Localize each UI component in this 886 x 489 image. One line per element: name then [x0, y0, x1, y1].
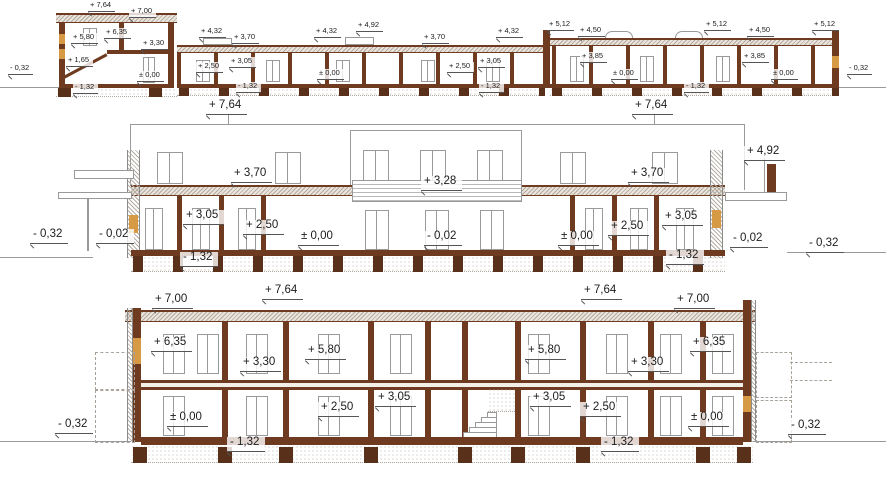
level-label: + 2,50 [318, 402, 359, 417]
dashed-outline [756, 400, 792, 443]
level-label: + 7,64 [262, 285, 303, 300]
level-label: ± 0,00 [688, 412, 729, 427]
footing [279, 447, 293, 463]
level-label: + 7,64 [581, 285, 622, 300]
window [246, 396, 268, 436]
dashed-outline [95, 390, 135, 443]
footing [364, 447, 378, 463]
window [197, 334, 219, 374]
floor-slab [141, 380, 743, 390]
window [390, 334, 412, 374]
column [580, 322, 586, 380]
column [283, 322, 289, 380]
level-label: - 1,32 [601, 437, 639, 452]
level-label: + 6,35 [151, 337, 192, 352]
stair-step [469, 427, 497, 432]
level-label: + 3,30 [240, 357, 281, 372]
column [222, 322, 228, 380]
column [283, 390, 289, 437]
level-label: + 7,00 [674, 294, 715, 309]
stair-hatch [488, 388, 515, 412]
level-label: ± 0,00 [167, 412, 208, 427]
level-label: - 0,32 [788, 420, 826, 435]
footing [576, 447, 590, 463]
column [222, 390, 228, 437]
column [462, 390, 468, 437]
column [515, 390, 521, 437]
stair-step [487, 412, 497, 417]
level-label: + 5,80 [525, 345, 566, 360]
column [425, 322, 431, 380]
cross-sections-drawing: + 7,64+ 7,00+ 5,80+ 6,35+ 3,30+ 1,65± 0,… [0, 0, 886, 489]
level-label: + 2,50 [580, 402, 621, 417]
footing [696, 447, 710, 463]
level-label: + 3,05 [530, 392, 571, 407]
section-bottom: + 7,00+ 7,64+ 7,64+ 7,00+ 6,35+ 3,30+ 5,… [0, 0, 886, 489]
stair-step [481, 417, 497, 422]
roof-slab [125, 310, 755, 322]
level-label: + 3,30 [628, 357, 669, 372]
level-label: + 5,80 [305, 345, 346, 360]
level-label: + 6,35 [690, 337, 731, 352]
accent-timber [743, 396, 751, 412]
dashed-outline [756, 352, 792, 398]
footing [511, 447, 525, 463]
column [462, 322, 468, 380]
column [368, 322, 374, 380]
footing [133, 447, 147, 463]
dashed-outline [790, 362, 832, 363]
column [368, 390, 374, 437]
level-label: - 0,32 [55, 419, 93, 434]
level-label: + 7,00 [152, 294, 193, 309]
dashed-outline [95, 352, 135, 390]
wall [743, 300, 751, 442]
column [515, 322, 521, 380]
window [660, 396, 682, 436]
footing [737, 447, 751, 463]
level-label: - 1,32 [227, 437, 265, 452]
column [648, 390, 654, 437]
stair-step [475, 422, 497, 427]
dashed-outline [790, 380, 832, 381]
column [425, 390, 431, 437]
level-label: + 3,05 [375, 392, 416, 407]
footing [458, 447, 472, 463]
window [606, 334, 628, 374]
